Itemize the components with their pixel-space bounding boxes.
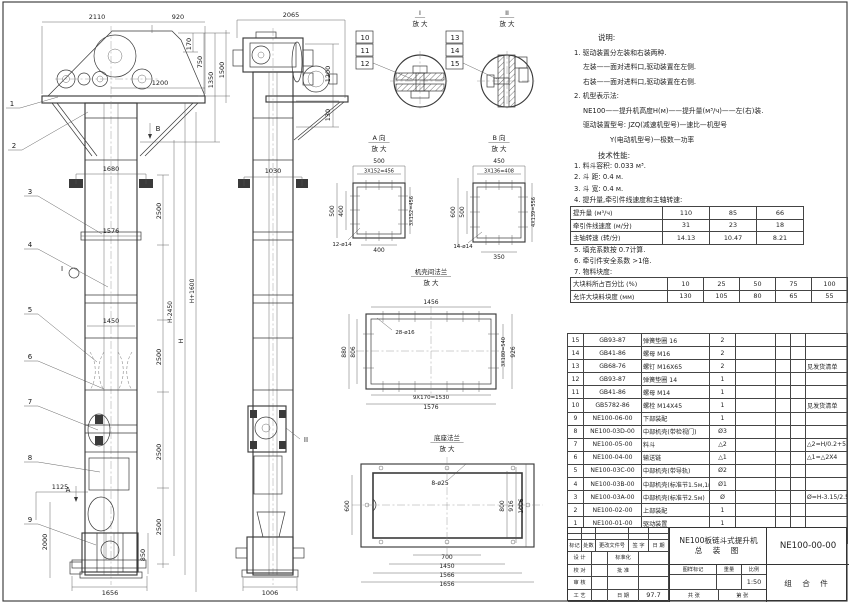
bom-cell: 下部装配 bbox=[642, 412, 710, 425]
bom-cell: GB93-87 bbox=[584, 373, 642, 386]
bom-cell: GB93-87 bbox=[584, 334, 642, 347]
bom-row: 12GB93-87弹簧垫圈 141 bbox=[568, 373, 848, 386]
bom-cell: NE100-03C-00 bbox=[584, 464, 642, 477]
bom-row: 8NE100-03D-00中部机壳(带检视门)Ø3 bbox=[568, 425, 848, 438]
mark-label: 标记 bbox=[568, 540, 582, 552]
bom-cell: 输送链 bbox=[642, 451, 710, 464]
dim-label: 600 bbox=[450, 206, 457, 218]
bom-row: 6NE100-04-00输送链△1△1=△2X4 bbox=[568, 451, 848, 464]
capacity-row: 主轴转速 (转/分)14.1310.478.21 bbox=[571, 232, 804, 245]
dim-label: 350 bbox=[493, 254, 505, 261]
bom-cell bbox=[806, 386, 848, 399]
dim-label: 2500 bbox=[155, 519, 163, 536]
dim-label: 700 bbox=[441, 554, 453, 561]
detail-casing-flange-view bbox=[349, 306, 512, 404]
bom-cell bbox=[776, 334, 791, 347]
callout-number: 11 bbox=[361, 47, 370, 55]
view-title-scale: 放 大 bbox=[439, 444, 455, 453]
dim-label: 2000 bbox=[41, 534, 49, 551]
bom-cell: Ø1 bbox=[710, 478, 736, 491]
bom-cell bbox=[736, 438, 776, 451]
bom-cell: 9 bbox=[568, 412, 584, 425]
bom-cell bbox=[776, 386, 791, 399]
dim-label: 400 bbox=[338, 205, 345, 217]
bom-row: 5NE100-03C-00中部机壳(带导轨)Ø2 bbox=[568, 464, 848, 477]
bom-cell bbox=[791, 412, 806, 425]
callout-number: B bbox=[156, 125, 161, 133]
count-label: 处数 bbox=[582, 540, 596, 552]
dim-label: 2500 bbox=[155, 444, 163, 461]
value-cell: 10.47 bbox=[710, 232, 757, 245]
bom-cell: 1 bbox=[710, 412, 736, 425]
bom-row: 15GB93-87弹簧垫圈 162 bbox=[568, 334, 848, 347]
view-title-scale: 放 大 bbox=[423, 278, 439, 287]
change-doc-label: 更改文件号 bbox=[596, 540, 629, 552]
bom-cell: 弹簧垫圈 14 bbox=[642, 373, 710, 386]
bom-cell: 螺母 M16 bbox=[642, 347, 710, 360]
bom-row: 9NE100-06-00下部装配1 bbox=[568, 412, 848, 425]
value-cell: 130 bbox=[668, 290, 704, 303]
bom-cell: NE100-03D-00 bbox=[584, 425, 642, 438]
bom-row: 7NE100-05-00料斗△2△2=H/0.2+5.75 bbox=[568, 438, 848, 451]
dim-label: 1006 bbox=[518, 498, 525, 513]
callout-number: A bbox=[66, 486, 71, 494]
sheet-number-label: 第 张 bbox=[719, 590, 768, 601]
dim-label: 3X136=408 bbox=[484, 169, 514, 175]
bom-cell bbox=[791, 425, 806, 438]
row-label-cell: 提升量 (м³/ч) bbox=[571, 207, 663, 220]
callout-number: I bbox=[61, 265, 63, 273]
callout-number: 13 bbox=[451, 34, 460, 42]
scale-label: 比例 bbox=[742, 565, 767, 575]
bom-cell: 上部装配 bbox=[642, 504, 710, 517]
notes-block: 说明: 1. 驱动装置分左装和右装两种.左装——面对进料口,驱动装置在左侧.右装… bbox=[574, 31, 848, 147]
review-label: 审 核 bbox=[568, 577, 592, 590]
bom-cell: 弹簧垫圈 16 bbox=[642, 334, 710, 347]
date-label: 日 期 bbox=[649, 540, 669, 552]
bom-cell bbox=[791, 399, 806, 412]
value-cell: 23 bbox=[710, 219, 757, 232]
dim-label: 1576 bbox=[103, 227, 120, 235]
view-title-name: 底座法兰 bbox=[434, 433, 461, 442]
note-line: 左装——面对进料口,驱动装置在左侧. bbox=[574, 60, 848, 75]
dim-label: 1006 bbox=[262, 589, 279, 597]
bom-cell bbox=[791, 478, 806, 491]
tech-performance-block: 技术性能: 1. 料斗容积: 0.033 м³.2. 斗 距: 0.4 м.3.… bbox=[574, 150, 848, 206]
dim-label: 750 bbox=[196, 56, 204, 68]
title-block-right: NE100-00-00 组 合 件 bbox=[766, 528, 849, 602]
dim-label: 500 bbox=[329, 205, 336, 217]
callout-number: 8 bbox=[28, 454, 32, 462]
dim-label: 1566 bbox=[439, 572, 454, 579]
value-cell: 105 bbox=[704, 290, 740, 303]
standard-label: 标准化 bbox=[608, 552, 639, 565]
part-class: 组 合 件 bbox=[767, 565, 849, 602]
bom-cell: 15 bbox=[568, 334, 584, 347]
left-elevation-head bbox=[42, 31, 205, 156]
bom-cell: 1 bbox=[710, 504, 736, 517]
dim-label: 2065 bbox=[283, 11, 300, 19]
bom-cell bbox=[791, 491, 806, 504]
bom-cell: 中部机壳(标准节1.5м,1м) bbox=[642, 478, 710, 491]
callout-number: 1 bbox=[10, 100, 14, 108]
date-field-label: 日 期 bbox=[608, 590, 639, 603]
drawing-sheet: 2110920170750135015001200168025001576H-2… bbox=[0, 0, 850, 609]
value-cell: 66 bbox=[757, 207, 804, 220]
bom-cell: △1 bbox=[710, 451, 736, 464]
value-cell: 8.21 bbox=[757, 232, 804, 245]
bom-cell bbox=[806, 334, 848, 347]
callout-number: 6 bbox=[28, 353, 33, 361]
dim-label: 850 bbox=[139, 549, 147, 561]
bom-row: 14GB41-86螺母 M162 bbox=[568, 347, 848, 360]
bom-cell: 2 bbox=[568, 504, 584, 517]
dim-label: 800 bbox=[499, 500, 506, 512]
bom-cell bbox=[806, 504, 848, 517]
callout-number: 3 bbox=[28, 188, 32, 196]
dim-label: 3X152=456 bbox=[409, 196, 415, 226]
bom-cell bbox=[736, 504, 776, 517]
value-cell: 110 bbox=[663, 207, 710, 220]
view-title-scale: 放 大 bbox=[499, 19, 515, 28]
bom-cell: 2 bbox=[710, 360, 736, 373]
dim-label: 400 bbox=[373, 247, 385, 254]
dim-label: 1500 bbox=[218, 62, 226, 79]
bom-cell bbox=[776, 464, 791, 477]
value-cell: 85 bbox=[710, 207, 757, 220]
bom-cell bbox=[736, 412, 776, 425]
bom-cell bbox=[776, 412, 791, 425]
stamp-label: 图样标记 bbox=[670, 565, 717, 575]
callout-number: 5 bbox=[28, 306, 32, 314]
dim-label: 916 bbox=[508, 500, 515, 512]
dim-label: 3X152=456 bbox=[364, 169, 394, 175]
row-label-cell: 主轴转速 (转/分) bbox=[571, 232, 663, 245]
bom-cell: 2 bbox=[710, 334, 736, 347]
view-title-name: A 向 bbox=[372, 133, 385, 142]
bom-cell: GB68-76 bbox=[584, 360, 642, 373]
bom-cell bbox=[776, 478, 791, 491]
tech-line: 6. 牵引件安全系数 >1倍. bbox=[574, 256, 848, 267]
bom-cell bbox=[791, 373, 806, 386]
bom-cell: NE100-02-00 bbox=[584, 504, 642, 517]
bom-cell: GB41-86 bbox=[584, 386, 642, 399]
value-cell: 100 bbox=[812, 278, 848, 291]
dim-label: H bbox=[177, 338, 185, 343]
bom-cell bbox=[736, 399, 776, 412]
tech-notes-block-2: 5. 填充系数按 0.7计算.6. 牵引件安全系数 >1倍.7. 物料块度: bbox=[574, 245, 848, 279]
dim-label: 4X139=556 bbox=[531, 197, 537, 227]
part-callouts: 123456789101112131415ABIII bbox=[10, 34, 460, 524]
lump-row: 大块料所占百分比 (%)10255075100 bbox=[571, 278, 848, 291]
sign-label: 签 字 bbox=[629, 540, 649, 552]
bom-cell: NE100-05-00 bbox=[584, 438, 642, 451]
tech-line: 4. 提升量,牵引件线速度和主轴转速: bbox=[574, 195, 848, 206]
bom-cell bbox=[776, 399, 791, 412]
bom-cell: △2 bbox=[710, 438, 736, 451]
bom-cell: 4 bbox=[568, 478, 584, 491]
dim-label: 2500 bbox=[155, 349, 163, 366]
view-title-name: I bbox=[419, 9, 421, 17]
bom-cell: GB41-86 bbox=[584, 347, 642, 360]
bom-row: 2NE100-02-00上部装配1 bbox=[568, 504, 848, 517]
bom-cell bbox=[776, 373, 791, 386]
bom-cell: △1=△2X4 bbox=[806, 451, 848, 464]
bom-cell bbox=[736, 451, 776, 464]
bom-cell bbox=[776, 451, 791, 464]
bom-cell bbox=[736, 491, 776, 504]
dim-label: H-2450 bbox=[167, 301, 174, 323]
bom-cell: 2 bbox=[710, 347, 736, 360]
view-title-name: II bbox=[505, 9, 509, 17]
note-line: 右装——面对进料口,驱动装置在右侧. bbox=[574, 75, 848, 90]
bom-row: 13GB68-76螺钉 M16X652见发货清单 bbox=[568, 360, 848, 373]
bom-cell bbox=[736, 373, 776, 386]
value-cell: 55 bbox=[812, 290, 848, 303]
bom-cell: 螺钉 M16X65 bbox=[642, 360, 710, 373]
bom-cell: 8 bbox=[568, 425, 584, 438]
title-block: 标记 处数 更改文件号 签 字 日 期 设 计 标准化 校 对 批 准 审 核 … bbox=[567, 527, 847, 601]
callout-number: 14 bbox=[451, 47, 460, 55]
capacity-table: 提升量 (м³/ч)1108566牵引件线速度 (м/分)312318主轴转速 … bbox=[570, 206, 804, 245]
value-cell: 25 bbox=[704, 278, 740, 291]
bom-cell: 见发货清单 bbox=[806, 360, 848, 373]
bom-cell: NE100-04-00 bbox=[584, 451, 642, 464]
bom-cell: △2=H/0.2+5.75 bbox=[806, 438, 848, 451]
bom-cell bbox=[736, 386, 776, 399]
bom-cell: 料斗 bbox=[642, 438, 710, 451]
view-title-scale: 放 大 bbox=[491, 144, 507, 153]
bom-cell: 10 bbox=[568, 399, 584, 412]
bom-cell bbox=[806, 425, 848, 438]
value-cell: 18 bbox=[757, 219, 804, 232]
bom-cell: NE100-03A-00 bbox=[584, 491, 642, 504]
bom-row: 4NE100-03B-00中部机壳(标准节1.5м,1м)Ø1 bbox=[568, 478, 848, 491]
bom-cell: 6 bbox=[568, 451, 584, 464]
bom-cell: 3 bbox=[568, 491, 584, 504]
value-cell: 65 bbox=[776, 290, 812, 303]
view-title-scale: 放 大 bbox=[371, 144, 387, 153]
view-title-name: 机壳间法兰 bbox=[415, 267, 448, 276]
bom-cell bbox=[776, 491, 791, 504]
drawing-number: NE100-00-00 bbox=[767, 528, 849, 565]
bom-cell: 中部机壳(带导轨) bbox=[642, 464, 710, 477]
product-name: NE100板链斗式提升机 bbox=[679, 536, 757, 546]
bom-cell bbox=[736, 478, 776, 491]
bom-cell: 1 bbox=[710, 386, 736, 399]
dim-label: 2110 bbox=[89, 13, 106, 21]
bom-cell bbox=[776, 425, 791, 438]
bom-cell bbox=[791, 360, 806, 373]
bom-cell: 中部机壳(标准节2.5м) bbox=[642, 491, 710, 504]
detail-I-view bbox=[356, 31, 450, 111]
dimension-labels: 2110920170750135015001200168025001576H-2… bbox=[41, 11, 537, 597]
callout-number: 10 bbox=[361, 34, 370, 42]
lump-row: 允许大块料块度 (мм)130105806555 bbox=[571, 290, 848, 303]
view-title-scale: 放 大 bbox=[412, 19, 428, 28]
bom-cell bbox=[806, 373, 848, 386]
callout-number: 2 bbox=[12, 142, 16, 150]
dim-label: 14-ø14 bbox=[453, 244, 473, 250]
bom-cell bbox=[791, 504, 806, 517]
tech-line: 1. 料斗容积: 0.033 м³. bbox=[574, 161, 848, 172]
left-elevation-callout-leaders bbox=[6, 97, 108, 545]
bom-cell bbox=[806, 464, 848, 477]
title-block-signature-grid: 设 计 标准化 校 对 批 准 审 核 工 艺 日 期 97.7 bbox=[568, 552, 669, 602]
value-cell: 75 bbox=[776, 278, 812, 291]
note-line: 驱动装置型号: JZQ(减速机型号)—速比—机型号 bbox=[574, 118, 848, 133]
note-line: NE100——提升机高度H(м)——提升量(м³/ч)——左(右)装. bbox=[574, 104, 848, 119]
detail-B-view bbox=[458, 166, 532, 252]
bom-cell bbox=[791, 386, 806, 399]
tech-line: 2. 斗 距: 0.4 м. bbox=[574, 172, 848, 183]
lump-size-table: 大块料所占百分比 (%)10255075100允许大块料块度 (мм)13010… bbox=[570, 277, 848, 303]
callout-number: 12 bbox=[361, 60, 370, 68]
dim-label: 1656 bbox=[439, 581, 454, 588]
dim-label: 920 bbox=[172, 13, 184, 21]
capacity-row: 牵引件线速度 (м/分)312318 bbox=[571, 219, 804, 232]
dim-label: 1576 bbox=[423, 404, 438, 411]
bom-cell bbox=[791, 451, 806, 464]
dim-label: 12-ø14 bbox=[332, 242, 352, 248]
design-label: 设 计 bbox=[568, 552, 592, 565]
dim-label: H+1600 bbox=[189, 278, 196, 303]
bom-cell bbox=[776, 504, 791, 517]
bom-cell bbox=[736, 347, 776, 360]
value-cell: 14.13 bbox=[663, 232, 710, 245]
dim-label: 1456 bbox=[423, 299, 438, 306]
dim-label: 8-ø25 bbox=[431, 480, 448, 487]
bom-cell bbox=[736, 360, 776, 373]
note-line: 1. 驱动装置分左装和右装两种. bbox=[574, 46, 848, 61]
bom-row: 11GB41-86螺母 M141 bbox=[568, 386, 848, 399]
detail-A-view bbox=[337, 166, 410, 245]
bom-cell bbox=[776, 438, 791, 451]
bom-cell: Ø2 bbox=[710, 464, 736, 477]
bom-cell: NE100-06-00 bbox=[584, 412, 642, 425]
callout-number: 7 bbox=[28, 398, 32, 406]
approve-label: 批 准 bbox=[608, 565, 639, 578]
bom-cell bbox=[806, 347, 848, 360]
bom-cell: 螺母 M14 bbox=[642, 386, 710, 399]
row-label-cell: 大块料所占百分比 (%) bbox=[571, 278, 668, 291]
drawing-type: 总 装 图 bbox=[695, 546, 743, 556]
dim-label: 1450 bbox=[103, 317, 120, 325]
sheets-total-label: 共 张 bbox=[670, 590, 719, 601]
value-cell: 50 bbox=[740, 278, 776, 291]
row-label-cell: 允许大块料块度 (мм) bbox=[571, 290, 668, 303]
note-line: 2. 机型表示法: bbox=[574, 89, 848, 104]
bom-cell: 见发货清单 bbox=[806, 399, 848, 412]
dim-label: 1030 bbox=[265, 167, 282, 175]
bom-cell: 12 bbox=[568, 373, 584, 386]
capacity-row: 提升量 (м³/ч)1108566 bbox=[571, 207, 804, 220]
title-block-middle: NE100板链斗式提升机 总 装 图 图样标记 重量 比例 1:50 共 张 第… bbox=[669, 528, 767, 602]
detail-II-view bbox=[446, 31, 537, 111]
weight-label: 重量 bbox=[717, 565, 742, 575]
bom-cell bbox=[736, 464, 776, 477]
bom-cell bbox=[806, 412, 848, 425]
value-cell: 10 bbox=[668, 278, 704, 291]
row-label-cell: 牵引件线速度 (м/分) bbox=[571, 219, 663, 232]
date-value: 97.7 bbox=[639, 590, 669, 603]
bom-cell: 螺栓 M14X45 bbox=[642, 399, 710, 412]
bom-cell bbox=[736, 334, 776, 347]
bom-cell bbox=[806, 478, 848, 491]
dim-label: 880 bbox=[341, 346, 348, 358]
check-label: 校 对 bbox=[568, 565, 592, 578]
dim-label: 2500 bbox=[155, 203, 163, 220]
bom-cell: NE100-03B-00 bbox=[584, 478, 642, 491]
bom-cell bbox=[791, 347, 806, 360]
tech-title: 技术性能: bbox=[574, 150, 848, 161]
notes-title: 说明: bbox=[574, 31, 848, 46]
title-block-revision-grid: 标记 处数 更改文件号 签 字 日 期 bbox=[568, 528, 669, 552]
dim-label: 500 bbox=[373, 158, 385, 165]
bom-cell: 13 bbox=[568, 360, 584, 373]
bom-cell: 7 bbox=[568, 438, 584, 451]
bom-cell: GB5782-86 bbox=[584, 399, 642, 412]
bom-cell: Ø=H-3.15/2.5 bbox=[806, 491, 848, 504]
dim-label: 600 bbox=[344, 500, 351, 512]
bom-cell: 5 bbox=[568, 464, 584, 477]
dim-label: 806 bbox=[350, 346, 357, 358]
bom-cell bbox=[791, 334, 806, 347]
dim-label: 926 bbox=[510, 346, 517, 358]
callout-number: 15 bbox=[451, 60, 460, 68]
dim-label: 450 bbox=[493, 158, 505, 165]
scale-value: 1:50 bbox=[742, 575, 767, 590]
value-cell: 31 bbox=[663, 219, 710, 232]
bom-row: 10GB5782-86螺栓 M14X451见发货清单 bbox=[568, 399, 848, 412]
dim-label: 1200 bbox=[324, 66, 332, 83]
bom-row: 3NE100-03A-00中部机壳(标准节2.5м)ØØ=H-3.15/2.5 bbox=[568, 491, 848, 504]
dim-label: 9X170=1530 bbox=[413, 395, 450, 401]
view-title-name: B 向 bbox=[492, 133, 505, 142]
bom-cell: 中部机壳(带检视门) bbox=[642, 425, 710, 438]
callout-number: 9 bbox=[28, 516, 32, 524]
bom-cell: Ø bbox=[710, 491, 736, 504]
value-cell: 80 bbox=[740, 290, 776, 303]
dim-label: 1656 bbox=[102, 589, 119, 597]
bom-cell: Ø3 bbox=[710, 425, 736, 438]
tech-line: 5. 填充系数按 0.7计算. bbox=[574, 245, 848, 256]
dim-label: 1350 bbox=[207, 72, 215, 89]
craft-label: 工 艺 bbox=[568, 590, 592, 603]
dim-label: 1200 bbox=[152, 79, 169, 87]
bom-cell bbox=[791, 438, 806, 451]
dim-label: 170 bbox=[185, 38, 193, 50]
callout-number: 4 bbox=[28, 241, 33, 249]
left-elevation-column bbox=[69, 26, 153, 585]
dim-label: 1450 bbox=[439, 563, 454, 570]
note-line: Y(电动机型号)—极数—功率 bbox=[574, 133, 848, 148]
bom-cell bbox=[791, 464, 806, 477]
bom-cell bbox=[776, 360, 791, 373]
left-elevation-dimensions bbox=[36, 22, 230, 592]
bom-cell bbox=[776, 347, 791, 360]
bom-cell: 1 bbox=[710, 373, 736, 386]
bom-cell: 11 bbox=[568, 386, 584, 399]
dim-label: 28-ø16 bbox=[395, 330, 415, 336]
dim-label: 1680 bbox=[103, 165, 120, 173]
bom-cell: 14 bbox=[568, 347, 584, 360]
dim-label: 500 bbox=[459, 206, 466, 218]
tech-line: 3. 斗 宽: 0.4 м. bbox=[574, 184, 848, 195]
dim-label: 3X180=540 bbox=[501, 337, 507, 367]
dim-label: 130 bbox=[324, 109, 332, 121]
callout-number: II bbox=[304, 436, 308, 444]
